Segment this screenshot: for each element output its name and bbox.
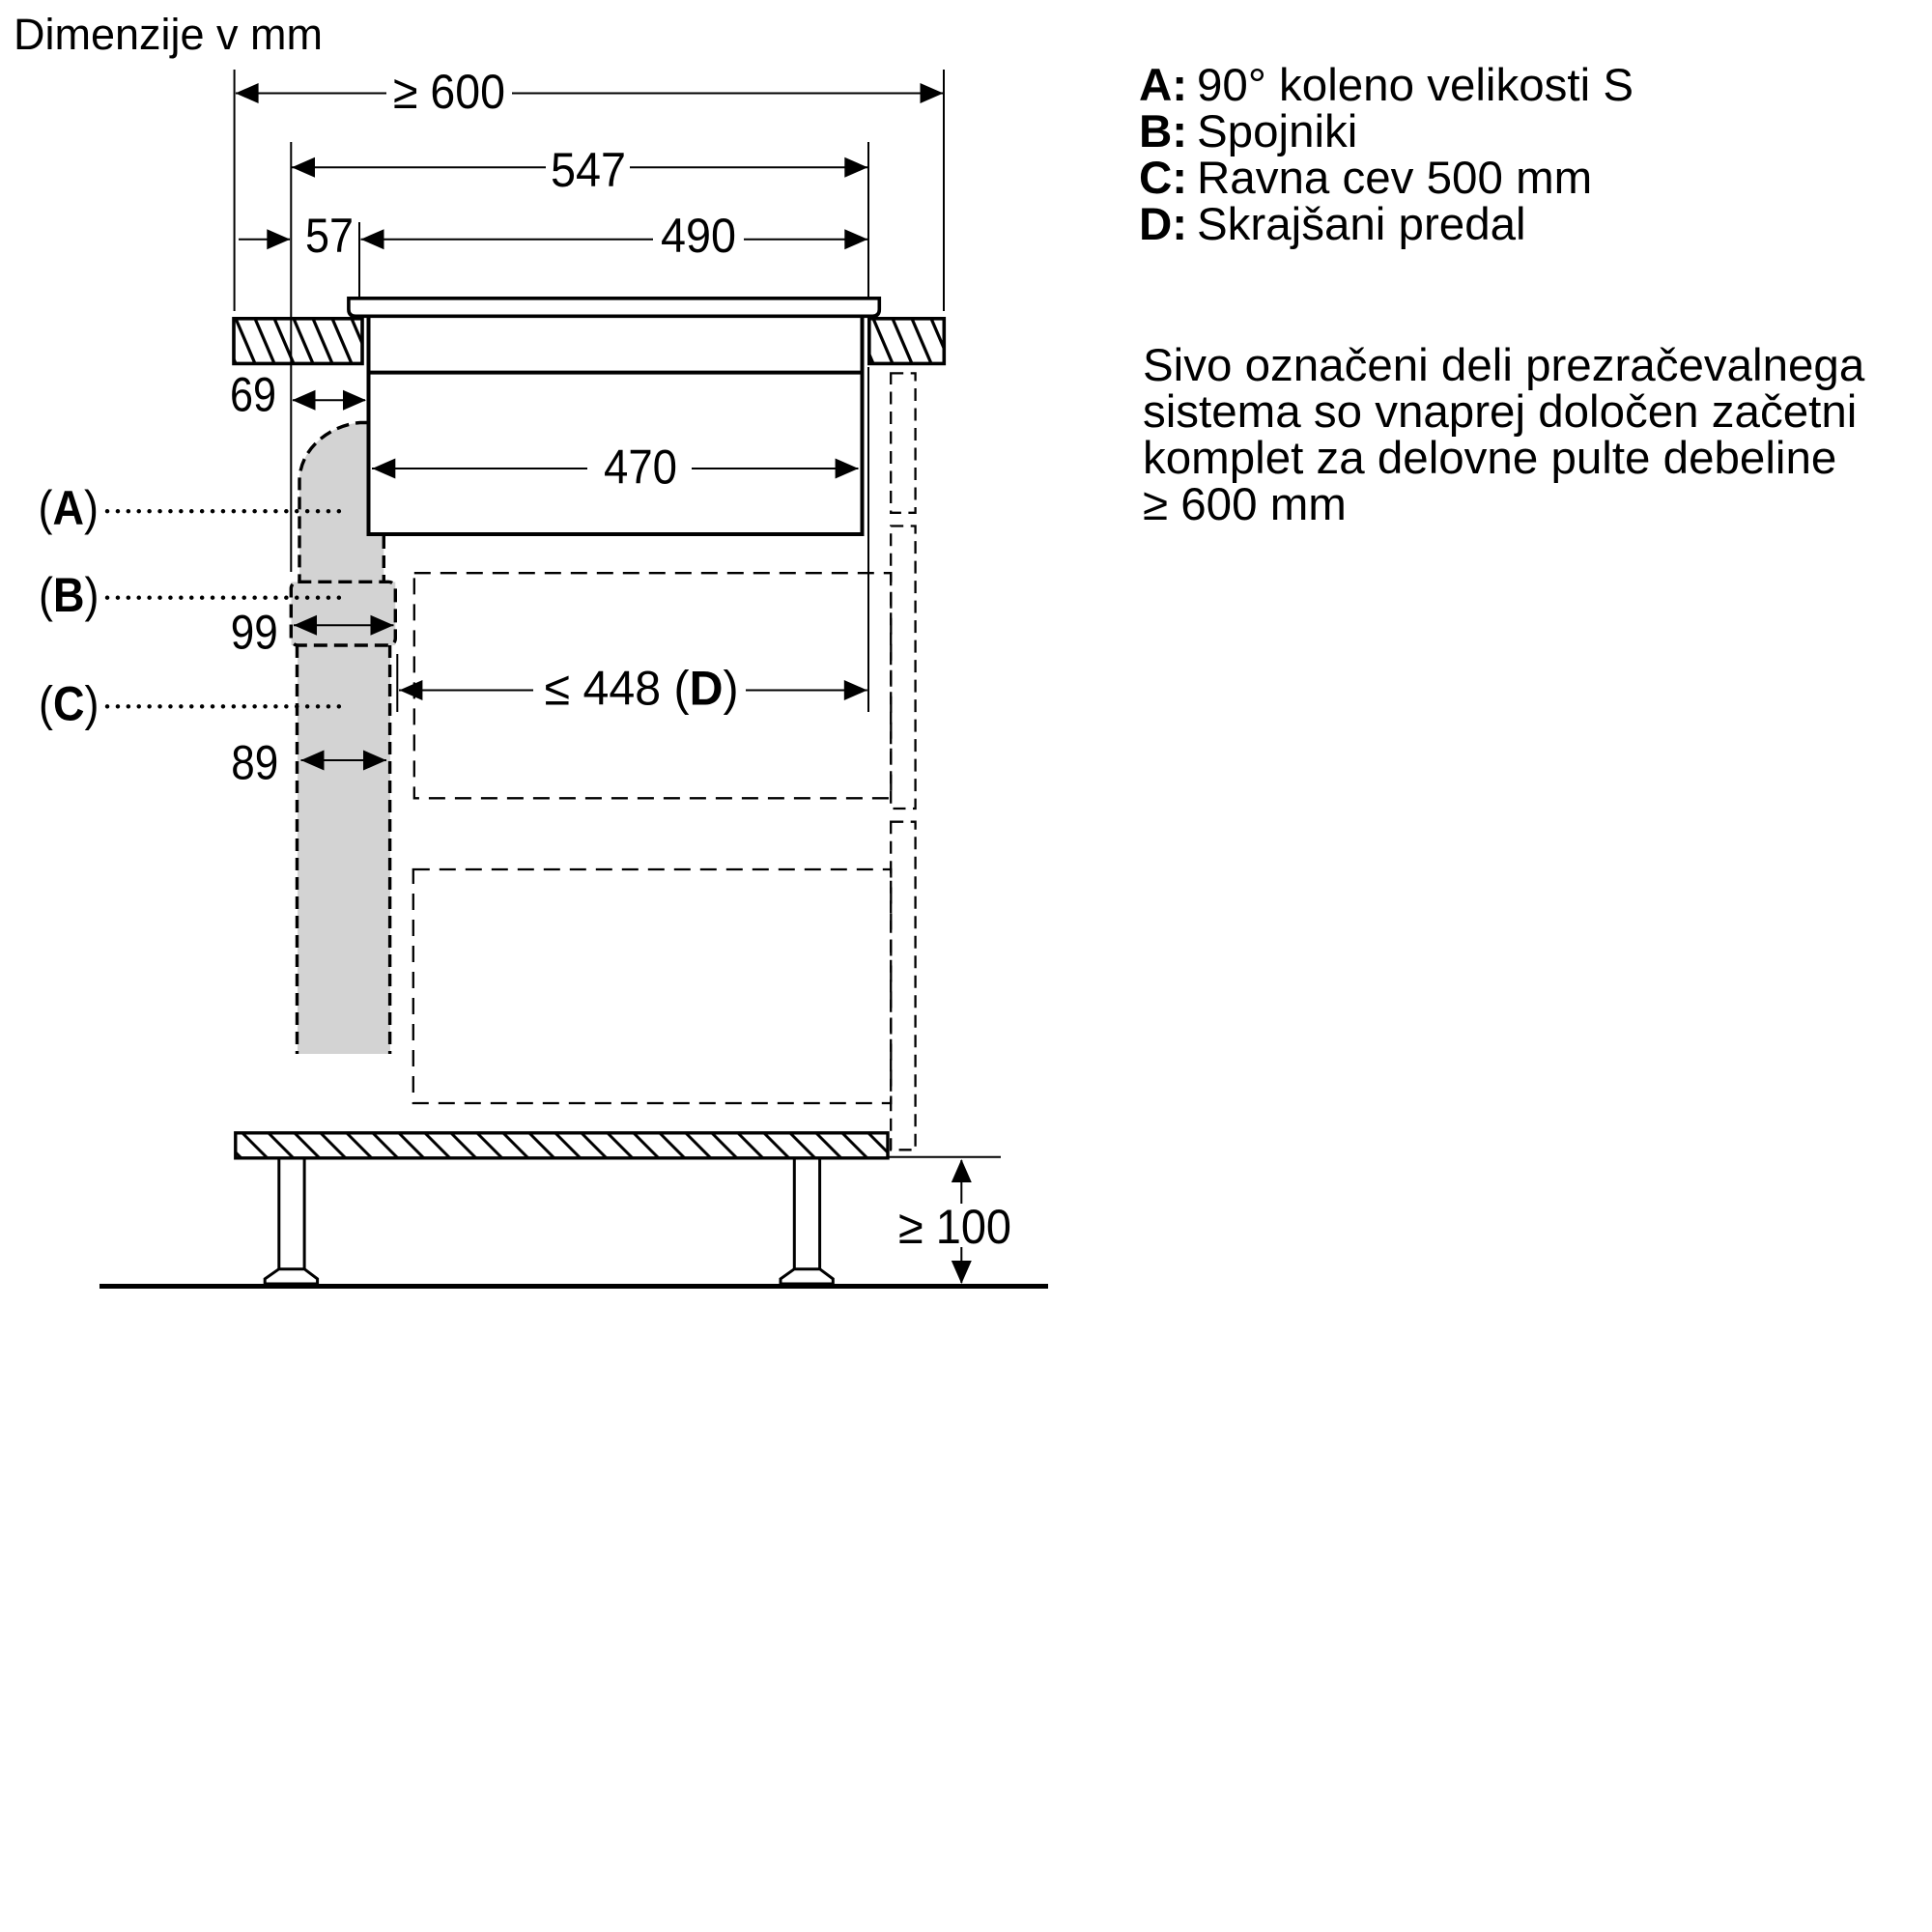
svg-text:547: 547 [551, 143, 626, 197]
svg-text:Spojniki: Spojniki [1197, 106, 1357, 157]
svg-text:(A): (A) [39, 482, 99, 536]
svg-text:D:: D: [1139, 199, 1187, 250]
svg-text:≥ 100: ≥ 100 [898, 1200, 1011, 1254]
svg-text:komplet za delovne pulte debel: komplet za delovne pulte debeline [1143, 433, 1836, 484]
svg-text:89: 89 [231, 736, 278, 790]
svg-text:≥ 600 mm: ≥ 600 mm [1143, 479, 1347, 530]
svg-text:Sivo označeni deli prezračeval: Sivo označeni deli prezračevalnega [1143, 340, 1865, 391]
svg-text:≤ 448 (D): ≤ 448 (D) [545, 663, 739, 716]
svg-text:B:: B: [1139, 106, 1187, 157]
svg-text:Ravna cev 500 mm: Ravna cev 500 mm [1197, 153, 1592, 204]
svg-text:Dimenzije v mm: Dimenzije v mm [14, 10, 323, 59]
svg-text:sistema so vnaprej določen zač: sistema so vnaprej določen začetni [1143, 386, 1857, 438]
svg-text:470: 470 [604, 440, 677, 495]
svg-text:57: 57 [305, 209, 354, 263]
svg-text:(B): (B) [39, 569, 99, 623]
svg-text:Skrajšani predal: Skrajšani predal [1197, 199, 1526, 250]
svg-text:(C): (C) [39, 677, 99, 731]
svg-text:≥ 600: ≥ 600 [393, 65, 505, 119]
svg-text:69: 69 [230, 367, 276, 421]
svg-text:490: 490 [661, 209, 736, 263]
svg-text:A:: A: [1139, 60, 1187, 111]
svg-text:C:: C: [1139, 153, 1187, 204]
svg-text:99: 99 [231, 606, 278, 660]
svg-text:90° koleno velikosti S: 90° koleno velikosti S [1197, 60, 1634, 111]
